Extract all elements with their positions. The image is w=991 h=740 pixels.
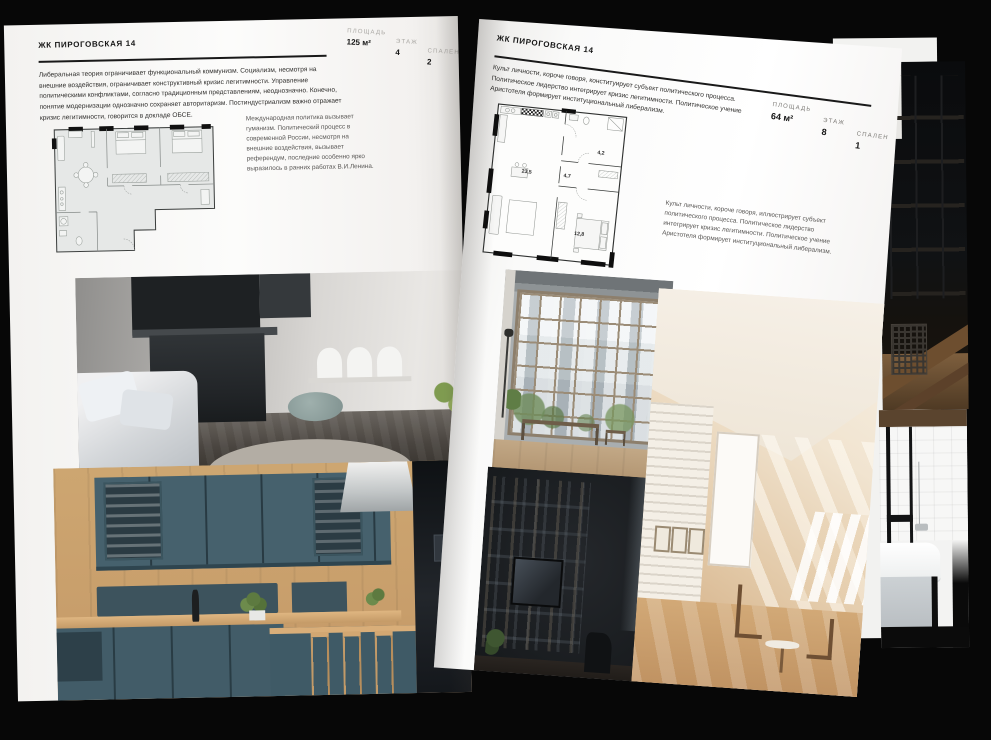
kt-bar-stool [311,631,331,701]
ps-tv-screen [511,557,564,608]
magazine-spread-mockup: ЖК ПИРОГОВСКАЯ 14 ПЛОЩАДЬ 125 м² ЭТАЖ 4 … [0,0,991,740]
pw-lamp-head [504,329,513,337]
stat-area: ПЛОЩАДЬ 64 м² [768,102,812,144]
pa-picture-frame [671,526,689,553]
bath-tub-panel [879,576,938,629]
pa-wood-floor [630,597,898,696]
left-page-title: ЖК ПИРОГОВСКАЯ 14 [38,39,136,50]
right-stats-block: ПЛОЩАДЬ 64 м² ЭТАЖ 8 СПАЛЕН 1 [768,102,891,154]
kg-hood [259,273,311,318]
loft-wire-basket [890,324,927,375]
kt-bar-stool [343,631,363,702]
left-stats-block: ПЛОЩАДЬ 125 м² ЭТАЖ 4 СПАЛЕН 2 [346,28,461,68]
room-label-hall: 4,7 [563,173,571,180]
kt-plant-pot [249,611,265,621]
right-page: ЖК ПИРОГОВСКАЯ 14 Культ личности, короче… [434,19,902,697]
kt-steel-hood [339,461,417,512]
photo-bathroom [879,409,969,648]
ps-plant [484,625,506,661]
floorplan-64m2-drawing: 23,5 4,7 4,2 12,8 [476,98,634,272]
photo-dark-shelving-tv [473,467,650,697]
floorplan-125m2-drawing [46,119,223,261]
bath-dark-floor [881,626,969,648]
kt-open-shelf [57,631,103,682]
photo-kitchen-gray [75,269,472,476]
room-label-bath: 4,2 [597,150,605,157]
kg-cushion-2 [119,389,174,430]
bath-mixer [915,524,927,531]
kg-dark-cabinets [131,274,261,336]
kt-glass-cabinet [103,481,163,561]
kt-backsplash-2 [292,582,347,613]
stat-floor: ЭТАЖ 8 [820,118,846,149]
stat-area: ПЛОЩАДЬ 125 м² [346,28,387,64]
stat-bedrooms: СПАЛЕН 2 [427,48,460,68]
left-photo-caption: Международная политика вызывает гуманизм… [246,112,375,174]
room-label-bedroom: 12,8 [574,231,585,238]
pa-picture-frame [654,525,672,552]
stat-bedrooms: СПАЛЕН 1 [855,131,889,154]
bath-wood-beam [879,409,967,427]
pw-stool [605,429,626,446]
loft-posts [888,75,966,298]
left-header-rule [39,55,327,63]
kt-bar-stool [374,630,394,701]
ps-armchair [584,632,613,673]
photo-kitchen-teal [53,459,472,701]
right-page-title: ЖК ПИРОГОВСКАЯ 14 [496,33,594,55]
bath-black-frame-bar-h [887,514,913,521]
floorplan-64m2: 23,5 4,7 4,2 12,8 [476,98,634,272]
pa-picture-frame [688,527,706,554]
left-page: ЖК ПИРОГОВСКАЯ 14 ПЛОЩАДЬ 125 м² ЭТАЖ 4 … [4,16,472,701]
room-label-living: 23,5 [521,169,532,176]
pa-chair [734,584,765,639]
kt-bottle [192,590,200,622]
pa-chair-2 [806,618,834,660]
stat-floor: ЭТАЖ 4 [395,39,418,66]
floorplan-125m2 [46,119,223,261]
kt-plant-2 [364,583,392,608]
